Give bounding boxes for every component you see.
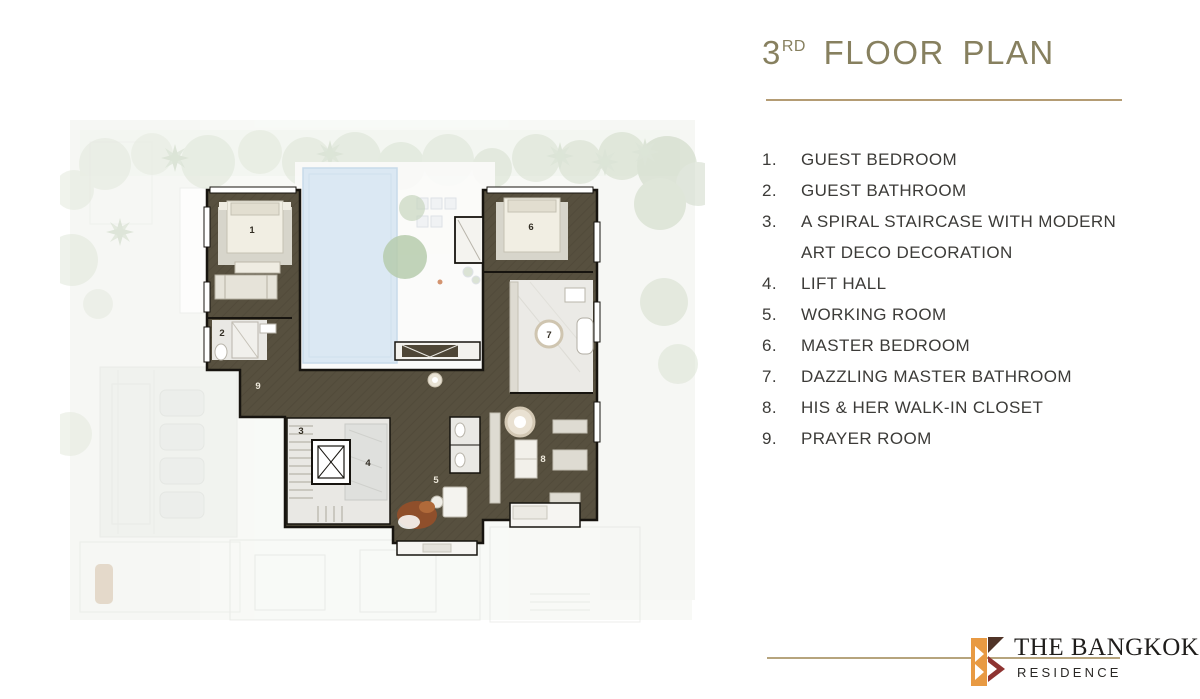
legend-item-number: 3. — [762, 206, 801, 237]
title-text: FLOOR PLAN — [824, 34, 1055, 71]
legend-item: 8.HIS & HER WALK-IN CLOSET — [762, 392, 1162, 423]
legend-item-number: 9. — [762, 423, 801, 454]
flower-accent — [438, 280, 443, 285]
small-shrub — [399, 195, 425, 221]
legend-item-number: 1. — [762, 144, 801, 175]
powder-rooms — [450, 417, 480, 473]
legend-item-label: A SPIRAL STAIRCASE WITH MODERN ART DECO … — [801, 206, 1139, 268]
legend-item-label: MASTER BEDROOM — [801, 330, 1139, 361]
legend-item: 7.DAZZLING MASTER BATHROOM — [762, 361, 1162, 392]
legend-item-number: 4. — [762, 268, 801, 299]
title-divider — [766, 99, 1122, 101]
legend-item-label: HIS & HER WALK-IN CLOSET — [801, 392, 1139, 423]
legend-item: 5.WORKING ROOM — [762, 299, 1162, 330]
legend-item-label: DAZZLING MASTER BATHROOM — [801, 361, 1139, 392]
legend-item-label: PRAYER ROOM — [801, 423, 1139, 454]
brand-subtitle: RESIDENCE — [1017, 665, 1122, 680]
legend-item-number: 2. — [762, 175, 801, 206]
legend-item: 3.A SPIRAL STAIRCASE WITH MODERN ART DEC… — [762, 206, 1162, 268]
room-label-8: 8 — [540, 454, 545, 465]
legend-item: 2.GUEST BATHROOM — [762, 175, 1162, 206]
room-label-2: 2 — [219, 328, 224, 339]
legend-item-number: 7. — [762, 361, 801, 392]
legend-item-label: WORKING ROOM — [801, 299, 1139, 330]
legend-item-label: GUEST BEDROOM — [801, 144, 1139, 175]
legend-item-number: 8. — [762, 392, 801, 423]
legend-item-label: GUEST BATHROOM — [801, 175, 1139, 206]
legend-item: 6.MASTER BEDROOM — [762, 330, 1162, 361]
legend-item-label: LIFT HALL — [801, 268, 1139, 299]
legend-item-number: 5. — [762, 299, 801, 330]
page: 1 2 9 — [0, 0, 1200, 699]
room-label-7: 7 — [546, 330, 551, 341]
floor-number: 3 — [762, 34, 782, 71]
floor-plan: 1 2 9 — [60, 112, 705, 624]
legend-item: 1.GUEST BEDROOM — [762, 144, 1162, 175]
legend-item: 4.LIFT HALL — [762, 268, 1162, 299]
legend-item-number: 6. — [762, 330, 801, 361]
room-label-5: 5 — [433, 475, 439, 486]
page-title: 3RD FLOOR PLAN — [762, 34, 1055, 72]
room-legend: 1.GUEST BEDROOM 2.GUEST BATHROOM 3.A SPI… — [762, 144, 1162, 454]
brand-logo-icon — [971, 636, 1007, 688]
tree-over-pool — [383, 235, 427, 279]
room-lift-hall: 3 4 — [287, 418, 390, 524]
room-label-3: 3 — [298, 426, 303, 437]
room-label-9: 9 — [255, 381, 260, 392]
brand-name: THE BANGKOK — [1014, 634, 1184, 662]
floor-ordinal: RD — [782, 38, 806, 55]
room-label-4: 4 — [365, 458, 371, 469]
room-label-6: 6 — [528, 222, 533, 233]
swimming-pool — [303, 168, 397, 363]
room-label-1: 1 — [249, 225, 255, 236]
room-master-bathroom: 7 — [510, 280, 593, 393]
legend-item: 9.PRAYER ROOM — [762, 423, 1162, 454]
